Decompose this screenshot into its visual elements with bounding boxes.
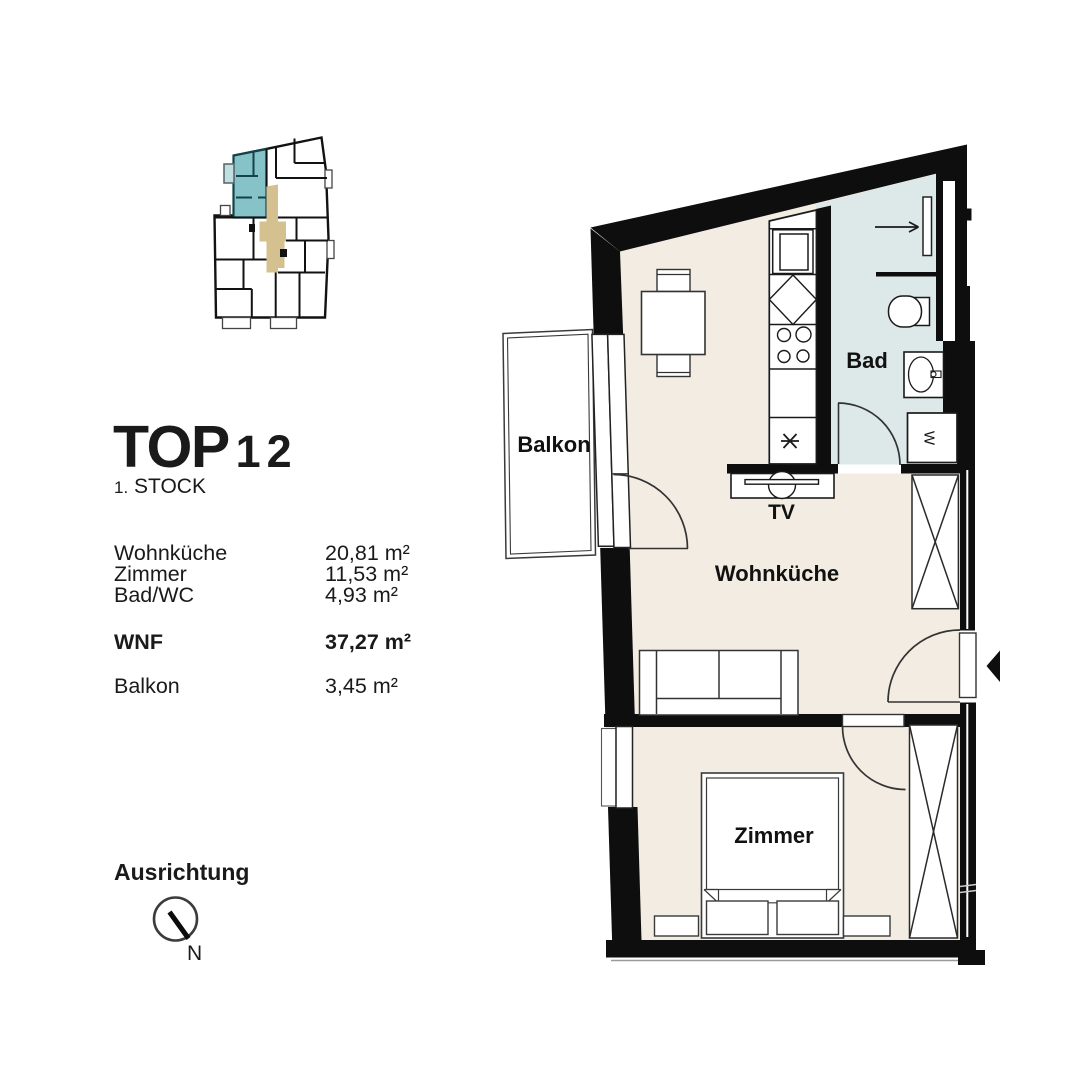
svg-text:Bad: Bad: [846, 348, 888, 373]
svg-text:N: N: [187, 942, 202, 965]
svg-text:TV: TV: [768, 501, 795, 524]
svg-text:Zimmer: Zimmer: [734, 823, 814, 848]
svg-text:W: W: [921, 431, 938, 446]
svg-text:Balkon: Balkon: [517, 432, 590, 457]
svg-text:Wohnküche: Wohnküche: [715, 561, 839, 586]
